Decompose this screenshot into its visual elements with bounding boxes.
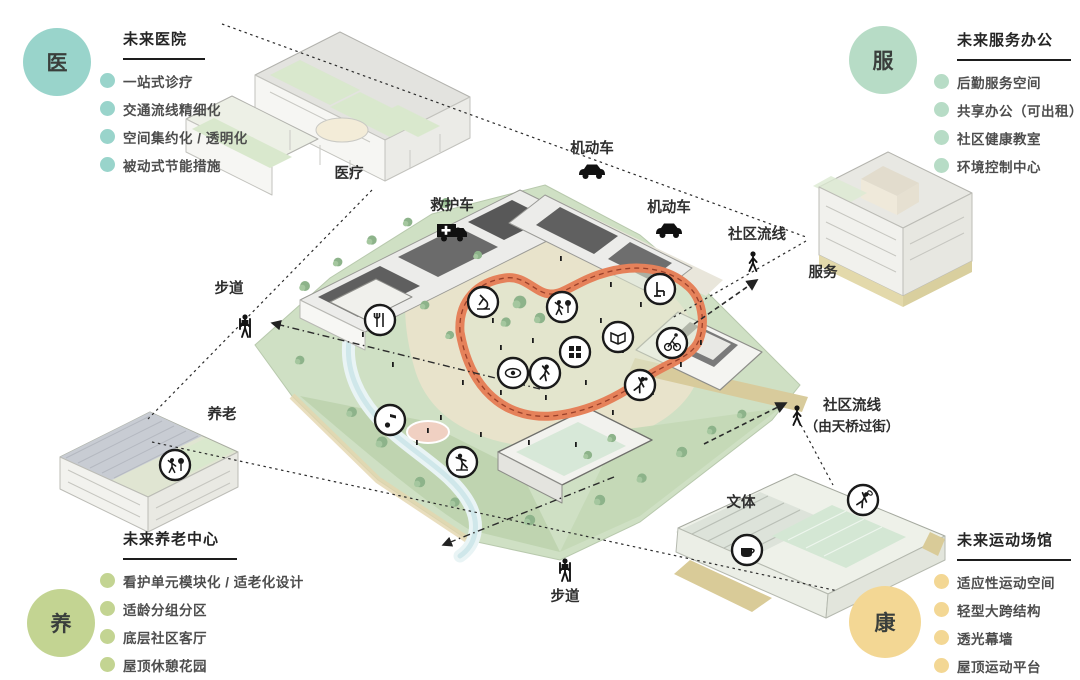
label-motor-top: 机动车	[570, 139, 614, 157]
feature-label: 看护单元模块化 / 适老化设计	[123, 571, 304, 591]
panel-title: 未来医院	[123, 28, 205, 60]
car-icon	[579, 165, 605, 180]
coffee-icon	[732, 535, 762, 565]
bullet-dot	[934, 130, 949, 145]
bullet-dot	[934, 574, 949, 589]
bullet-dot	[934, 102, 949, 117]
bullet-dot	[100, 629, 115, 644]
panel-future-hospital: 未来医院 一站式诊疗 交通流线精细化 空间集约化 / 透明化 被动式节能措施	[100, 28, 248, 179]
elder-building	[60, 412, 238, 532]
badge-elder: 养	[27, 589, 95, 657]
badge-medical: 医	[23, 28, 91, 96]
feature-label: 轻型大跨结构	[957, 600, 1041, 620]
feature-label: 底层社区客厅	[123, 627, 207, 647]
bullet-dot	[934, 602, 949, 617]
panel-future-elder-center: 未来养老中心 看护单元模块化 / 适老化设计 适龄分组分区 底层社区客厅 屋顶休…	[100, 528, 304, 679]
bullet-dot	[934, 630, 949, 645]
label-service-zone: 服务	[809, 263, 838, 281]
label-footpath-bottom: 步道	[551, 587, 580, 605]
bullet-dot	[934, 658, 949, 673]
locker-grid-icon	[560, 337, 590, 367]
feature-item: 一站式诊疗	[100, 67, 248, 94]
label-footpath-left: 步道	[215, 279, 244, 297]
pedestrian-icon	[793, 405, 800, 425]
feature-label: 后勤服务空间	[957, 72, 1041, 92]
feature-item: 屋顶休憩花园	[100, 651, 304, 678]
bullet-dot	[100, 657, 115, 672]
diagram-stage: 医疗 机动车 救护车 机动车 社区流线 服务 步道 养老 社区流线 （由天桥过街…	[0, 0, 1080, 672]
bullet-dot	[100, 157, 115, 172]
feature-label: 透光幕墙	[957, 628, 1013, 648]
microscope-icon	[468, 287, 498, 317]
pedestrian-icon	[749, 251, 756, 271]
feature-label: 共享办公（可出租）	[957, 100, 1080, 120]
label-community-flow-bridge: 社区流线	[822, 396, 881, 414]
feature-label: 交通流线精细化	[123, 99, 221, 119]
feature-label: 屋顶运动平台	[957, 656, 1041, 676]
chair-icon	[645, 274, 675, 304]
feature-item: 适龄分组分区	[100, 595, 304, 622]
feature-item: 社区健康教室	[934, 124, 1080, 151]
badminton-icon	[848, 485, 878, 515]
badge-service: 服	[849, 26, 917, 94]
feature-item: 交通流线精细化	[100, 95, 248, 122]
panel-title: 未来服务办公	[957, 29, 1071, 61]
panel-future-service-office: 未来服务办公 后勤服务空间 共享办公（可出租） 社区健康教室 环境控制中心	[934, 29, 1080, 180]
bullet-dot	[100, 73, 115, 88]
label-elder-zone: 养老	[207, 405, 237, 423]
fitness-icon	[530, 358, 560, 388]
bullet-dot	[100, 101, 115, 116]
feature-item: 空间集约化 / 透明化	[100, 123, 248, 150]
tabletennis-icon	[625, 370, 655, 400]
feature-label: 适应性运动空间	[957, 572, 1055, 592]
label-community-flow-top: 社区流线	[727, 225, 786, 243]
feature-label: 被动式节能措施	[123, 155, 221, 175]
label-motor-right: 机动车	[647, 198, 691, 216]
music-icon	[375, 405, 405, 435]
feature-item: 环境控制中心	[934, 152, 1080, 179]
label-culture-zone: 文体	[727, 493, 756, 511]
bullet-dot	[100, 601, 115, 616]
feature-item: 屋顶运动平台	[934, 652, 1071, 679]
bullet-dot	[100, 573, 115, 588]
book-icon	[603, 322, 633, 352]
car-icon	[656, 224, 682, 239]
feature-item: 适应性运动空间	[934, 568, 1071, 595]
skating-icon	[447, 447, 477, 477]
feature-item: 轻型大跨结构	[934, 596, 1071, 623]
label-hospital-zone: 医疗	[335, 164, 364, 182]
label-community-flow-bridge-note: （由天桥过街）	[805, 418, 900, 434]
cycling-icon	[657, 328, 687, 358]
feature-label: 适龄分组分区	[123, 599, 207, 619]
feature-item: 透光幕墙	[934, 624, 1071, 651]
bullet-dot	[934, 74, 949, 89]
feature-item: 后勤服务空间	[934, 68, 1080, 95]
hiker-icon	[240, 314, 250, 337]
feature-label: 一站式诊疗	[123, 71, 193, 91]
badge-sport: 康	[849, 586, 921, 658]
bullet-dot	[100, 129, 115, 144]
feature-item: 被动式节能措施	[100, 151, 248, 178]
hiker-icon	[560, 558, 570, 581]
feature-label: 社区健康教室	[957, 128, 1041, 148]
label-ambulance: 救护车	[430, 196, 474, 214]
eye-icon	[498, 358, 528, 388]
park-icon	[547, 292, 577, 322]
panel-title: 未来养老中心	[123, 528, 237, 560]
feature-label: 空间集约化 / 透明化	[123, 127, 248, 147]
feature-item: 看护单元模块化 / 适老化设计	[100, 567, 304, 594]
panel-future-sports-venue: 未来运动场馆 适应性运动空间 轻型大跨结构 透光幕墙 屋顶运动平台	[934, 529, 1071, 680]
bullet-dot	[934, 158, 949, 173]
panel-title: 未来运动场馆	[957, 529, 1071, 561]
eldercare-icon	[160, 450, 190, 480]
feature-item: 底层社区客厅	[100, 623, 304, 650]
dining-icon	[365, 305, 395, 335]
feature-item: 共享办公（可出租）	[934, 96, 1080, 123]
feature-label: 环境控制中心	[957, 156, 1041, 176]
